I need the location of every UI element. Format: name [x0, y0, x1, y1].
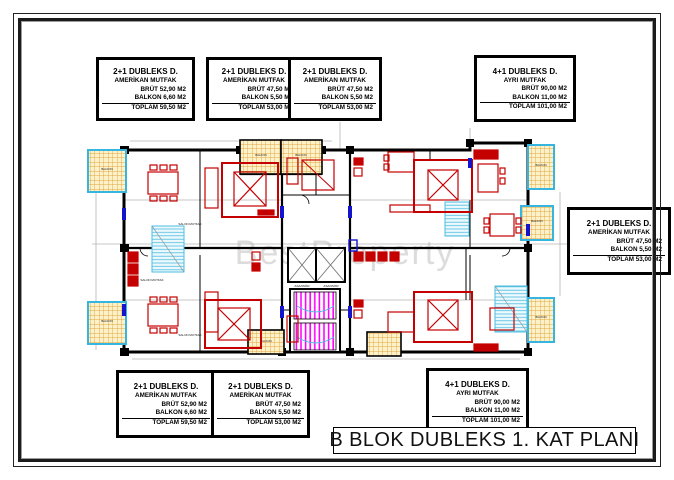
unit-info-box-bottom-mid: 2+1 DUBLEKS D. AMERİKAN MUTFAK BRÜT 47,5… [211, 370, 310, 438]
unit-info-box-top-left: 2+1 DUBLEKS D. AMERİKAN MUTFAK BRÜT 52,9… [96, 57, 195, 121]
balcony-label: BALKON [531, 219, 542, 223]
balcony-label: BALKON [535, 315, 546, 319]
balcony-label: BALKON [255, 153, 266, 157]
unit-balkon: BALKON 5,50 M2 [573, 246, 665, 256]
room-label-salon: SALON MUTFAK [178, 222, 201, 226]
floor-plan-page: BestProperty [0, 0, 674, 480]
unit-kitchen: AYRI MUTFAK [432, 390, 523, 399]
balcony-label: BALKON [101, 319, 112, 323]
unit-brut: BRÜT 47,50 M2 [294, 86, 376, 95]
plan-title: B BLOK DUBLEKS 1. KAT PLANI [333, 427, 636, 454]
unit-type: 4+1 DUBLEKS D. [480, 67, 570, 77]
unit-brut: BRÜT 47,50 M2 [212, 86, 296, 95]
unit-info-box-right: 2+1 DUBLEKS D. AMERİKAN MUTFAK BRÜT 47,5… [567, 207, 671, 275]
unit-brut: BRÜT 90,00 M2 [480, 85, 570, 94]
unit-type: 2+1 DUBLEKS D. [102, 67, 189, 77]
elevator-label: ASANSÖR [323, 284, 339, 288]
unit-brut: BRÜT 52,90 M2 [122, 401, 210, 410]
balcony-label: BALKON [535, 163, 546, 167]
unit-balkon: BALKON 6,60 M2 [122, 409, 210, 419]
unit-kitchen: AMERİKAN MUTFAK [122, 392, 210, 401]
elevator-core: ASANSÖR ASANSÖR [288, 248, 345, 352]
unit-kitchen: AYRI MUTFAK [480, 77, 570, 86]
unit-kitchen: AMERİKAN MUTFAK [294, 77, 376, 86]
unit-type: 2+1 DUBLEKS D. [573, 219, 665, 229]
unit-brut: BRÜT 90,00 M2 [432, 399, 523, 408]
unit-balkon: BALKON 11,00 M2 [480, 94, 570, 104]
balcony-label: BALKON [101, 167, 112, 171]
balcony-label: BALKON [295, 153, 306, 157]
unit-type: 2+1 DUBLEKS D. [122, 382, 210, 392]
unit-balkon: BALKON 5,50 M2 [294, 94, 376, 104]
unit-toplam: TOPLAM 101,00 M2 [432, 417, 523, 426]
unit-type: 2+1 DUBLEKS D. [212, 67, 296, 77]
unit-balkon: BALKON 5,50 M2 [212, 94, 296, 104]
unit-kitchen: AMERİKAN MUTFAK [212, 77, 296, 86]
unit-brut: BRÜT 47,50 M2 [573, 238, 665, 247]
elevator-label: ASANSÖR [294, 284, 310, 288]
unit-toplam: TOPLAM 53,00 M2 [573, 256, 665, 265]
unit-type: 2+1 DUBLEKS D. [294, 67, 376, 77]
unit-info-box-bottom-right: 4+1 DUBLEKS D. AYRI MUTFAK BRÜT 90,00 M2… [426, 368, 529, 436]
unit-balkon: BALKON 11,00 M2 [432, 407, 523, 417]
unit-toplam: TOPLAM 101,00 M2 [480, 103, 570, 112]
unit-kitchen: AMERİKAN MUTFAK [217, 392, 304, 401]
unit-info-box-top-mid-right: 2+1 DUBLEKS D. AMERİKAN MUTFAK BRÜT 47,5… [288, 57, 382, 121]
balcony-label: BALKON [260, 339, 271, 343]
room-label-salon: SALON MUTFAK [140, 278, 163, 282]
unit-kitchen: AMERİKAN MUTFAK [573, 229, 665, 238]
unit-type: 4+1 DUBLEKS D. [432, 380, 523, 390]
unit-type: 2+1 DUBLEKS D. [217, 382, 304, 392]
unit-brut: BRÜT 52,90 M2 [102, 86, 189, 95]
unit-info-box-top-right: 4+1 DUBLEKS D. AYRI MUTFAK BRÜT 90,00 M2… [474, 55, 576, 122]
unit-toplam: TOPLAM 59,50 M2 [102, 104, 189, 113]
unit-toplam: TOPLAM 53,00 M2 [294, 104, 376, 113]
unit-brut: BRÜT 47,50 M2 [217, 401, 304, 410]
unit-info-box-bottom-left: 2+1 DUBLEKS D. AMERİKAN MUTFAK BRÜT 52,9… [116, 370, 216, 438]
room-label-salon: SALON MUTFAK [178, 333, 201, 337]
unit-toplam: TOPLAM 53,00 M2 [217, 419, 304, 428]
unit-balkon: BALKON 5,50 M2 [217, 409, 304, 419]
unit-kitchen: AMERİKAN MUTFAK [102, 77, 189, 86]
unit-toplam: TOPLAM 59,50 M2 [122, 419, 210, 428]
unit-toplam: TOPLAM 53,00 M2 [212, 104, 296, 113]
unit-balkon: BALKON 6,60 M2 [102, 94, 189, 104]
